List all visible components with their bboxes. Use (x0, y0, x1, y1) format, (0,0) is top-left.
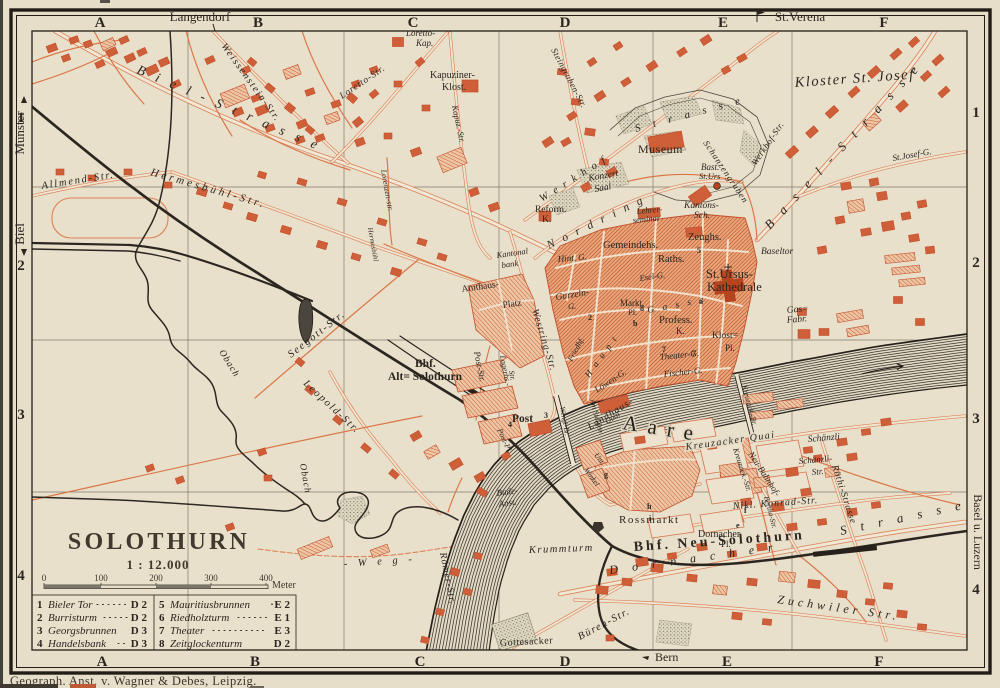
svg-text:Krummturm: Krummturm (528, 543, 594, 556)
svg-text:g: g (604, 470, 608, 479)
svg-text:Pl.: Pl. (725, 343, 735, 353)
svg-text:4: 4 (37, 638, 43, 650)
svg-text:F: F (879, 15, 888, 31)
svg-text:Kantons-: Kantons- (683, 201, 719, 211)
svg-text:Kathedrale: Kathedrale (707, 280, 762, 294)
svg-text:Riedholzturm: Riedholzturm (169, 612, 229, 624)
svg-text:6: 6 (159, 612, 165, 624)
svg-text:Klost=: Klost= (712, 331, 738, 341)
svg-text:Raths.: Raths. (658, 254, 685, 265)
svg-text:100: 100 (94, 573, 108, 583)
svg-text:Basel u. Luzern: Basel u. Luzern (971, 494, 985, 570)
svg-text:Gemeindehs.: Gemeindehs. (603, 240, 658, 251)
svg-text:A: A (95, 15, 106, 31)
svg-text:Theater: Theater (170, 625, 205, 637)
svg-text:D: D (560, 654, 571, 670)
svg-text:3: 3 (37, 625, 43, 637)
svg-text:Sch.: Sch. (694, 211, 710, 221)
svg-text:Kap.: Kap. (415, 38, 433, 48)
svg-text:E 3: E 3 (274, 625, 290, 637)
svg-text:3: 3 (972, 411, 980, 427)
svg-text:Burristurm: Burristurm (48, 612, 97, 624)
svg-text:0: 0 (42, 573, 47, 583)
svg-text:1 : 12.000: 1 : 12.000 (126, 557, 189, 572)
svg-text:K.: K. (676, 326, 685, 336)
svg-text:8: 8 (640, 304, 644, 313)
svg-text:Profess.: Profess. (659, 315, 693, 326)
svg-text:Str.: Str. (507, 370, 518, 381)
svg-text:Handelsbank: Handelsbank (47, 638, 107, 650)
svg-text:4: 4 (17, 568, 25, 584)
svg-text:200: 200 (149, 573, 163, 583)
svg-text:Biel: Biel (12, 223, 27, 245)
svg-text:300: 300 (204, 573, 218, 583)
svg-text:4: 4 (972, 582, 980, 598)
svg-text:1: 1 (37, 599, 43, 611)
svg-text:1: 1 (972, 105, 980, 121)
svg-text:K.: K. (542, 215, 551, 225)
svg-text:Alt= Solothurn: Alt= Solothurn (388, 371, 463, 383)
svg-text:Zeughs.: Zeughs. (688, 232, 722, 243)
svg-text:Langendorf: Langendorf (170, 9, 231, 24)
svg-text:4: 4 (508, 420, 512, 429)
svg-text:B: B (253, 15, 263, 31)
svg-text:Bhf.: Bhf. (415, 358, 436, 370)
svg-text:7: 7 (662, 345, 666, 354)
svg-text:St.Verena: St.Verena (775, 9, 825, 24)
svg-text:Fabr.: Fabr. (785, 314, 807, 326)
svg-text:Georgsbrunnen: Georgsbrunnen (48, 625, 117, 637)
svg-text:C: C (408, 15, 419, 31)
svg-text:E 1: E 1 (274, 612, 290, 624)
svg-text:D 2: D 2 (131, 612, 148, 624)
svg-text:D 2: D 2 (131, 599, 148, 611)
svg-text:h: h (647, 502, 652, 511)
svg-text:b: b (633, 319, 638, 328)
svg-text:a: a (699, 297, 703, 306)
svg-text:e: e (736, 521, 740, 530)
svg-text:8: 8 (159, 638, 165, 650)
svg-text:SOLOTHURN: SOLOTHURN (68, 529, 250, 555)
svg-text:G.: G. (568, 301, 576, 311)
svg-text:3: 3 (544, 411, 548, 420)
svg-text:B: B (250, 654, 260, 670)
svg-text:Meter: Meter (272, 580, 297, 591)
svg-text:2: 2 (972, 255, 980, 271)
svg-text:Pl.: Pl. (721, 539, 731, 549)
svg-text:F: F (874, 654, 883, 670)
svg-text:5: 5 (697, 246, 701, 255)
svg-text:7: 7 (692, 349, 696, 358)
svg-text:2: 2 (37, 612, 43, 624)
svg-text:7: 7 (159, 625, 165, 637)
svg-text:Zeitglockenturm: Zeitglockenturm (170, 638, 242, 650)
svg-text:3: 3 (17, 407, 25, 423)
svg-text:Post: Post (512, 413, 533, 425)
svg-text:Museum: Museum (638, 142, 683, 156)
svg-text:St.Urs: St.Urs (699, 171, 721, 181)
svg-text:E: E (718, 15, 728, 31)
svg-text:Reform.: Reform. (535, 204, 566, 215)
svg-text:Pl.: Pl. (628, 307, 637, 317)
svg-text:Dornacher: Dornacher (698, 529, 741, 540)
svg-text:D 2: D 2 (274, 638, 291, 650)
svg-text:Bieler Tor: Bieler Tor (48, 599, 93, 611)
svg-text:C: C (415, 654, 426, 670)
svg-text:Mauritiusbrunnen: Mauritiusbrunnen (169, 599, 251, 611)
svg-text:Münster: Münster (12, 111, 27, 155)
svg-text:5: 5 (159, 599, 165, 611)
svg-text:D: D (560, 15, 571, 31)
svg-text:E: E (722, 654, 732, 670)
svg-text:Klost.: Klost. (442, 82, 466, 93)
svg-text:D 3: D 3 (131, 625, 148, 637)
svg-text:Kapuziner-: Kapuziner- (430, 70, 475, 81)
svg-text:2: 2 (588, 313, 592, 322)
svg-text:Bern: Bern (655, 650, 678, 664)
svg-text:St.Ursus-: St.Ursus- (706, 267, 753, 281)
svg-text:Baseltor: Baseltor (761, 247, 793, 257)
svg-text:A: A (97, 654, 108, 670)
svg-text:Str.: Str. (811, 466, 824, 477)
svg-text:D 3: D 3 (131, 638, 148, 650)
svg-text:f: f (744, 506, 747, 515)
svg-text:E 2: E 2 (274, 599, 290, 611)
svg-text:2: 2 (17, 258, 25, 274)
